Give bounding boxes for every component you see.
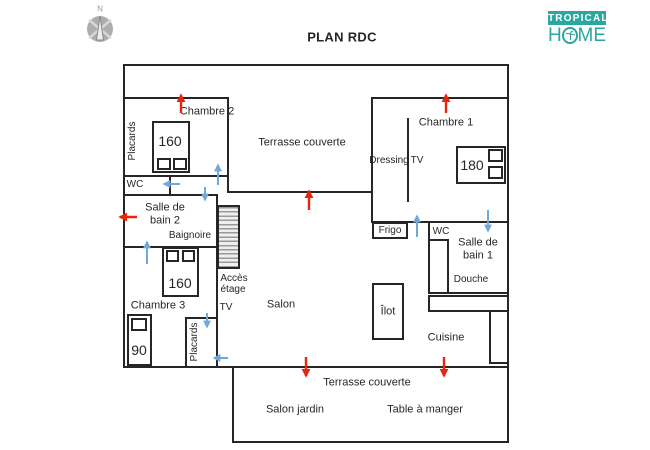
page-title: PLAN RDC bbox=[307, 30, 377, 45]
label-table-a-manger: Table à manger bbox=[387, 405, 463, 416]
room-label-cuisine: Cuisine bbox=[428, 333, 465, 344]
logo-word-tropical: TROPICAL bbox=[548, 11, 606, 25]
room-label-sdb2-line1: Salle de bbox=[145, 203, 185, 214]
kitchen-counter-right bbox=[489, 310, 509, 364]
compass-north-label: N bbox=[97, 5, 103, 14]
wall bbox=[169, 175, 171, 196]
pillow bbox=[173, 158, 187, 170]
label-baignoire: Baignoire bbox=[169, 231, 211, 241]
bed-size-label: 160 bbox=[158, 134, 181, 148]
room-label-salon: Salon bbox=[267, 300, 295, 311]
room-label-dressing: Dressing bbox=[369, 156, 408, 166]
wall bbox=[227, 191, 373, 193]
room-label-chambre-3: Chambre 3 bbox=[131, 301, 185, 312]
wall bbox=[507, 64, 509, 443]
room-label-sdb1-line1: Salle de bbox=[458, 238, 498, 249]
room-label-sdb2-line2: bain 2 bbox=[150, 216, 180, 227]
room-label-wc-left: WC bbox=[127, 180, 144, 190]
pillow bbox=[131, 318, 147, 331]
pillow bbox=[488, 166, 503, 179]
room-label-chambre-1: Chambre 1 bbox=[419, 118, 473, 129]
wall bbox=[371, 97, 509, 99]
room-label-terrasse-sud: Terrasse couverte bbox=[323, 378, 410, 389]
label-acces-etage-line2: étage bbox=[220, 285, 245, 295]
wall bbox=[123, 64, 509, 66]
wall bbox=[123, 64, 125, 368]
room-label-chambre-2: Chambre 2 bbox=[180, 107, 234, 118]
bed-size-label: 180 bbox=[460, 158, 483, 172]
label-frigo: Frigo bbox=[379, 226, 402, 236]
label-douche: Douche bbox=[454, 275, 488, 285]
logo-word-home: HME bbox=[548, 26, 606, 45]
logo-letters-me: ME bbox=[578, 26, 607, 45]
wall bbox=[123, 175, 229, 177]
pillow bbox=[166, 250, 179, 262]
shower-partition-wall bbox=[428, 239, 449, 241]
label-placards-chambre-3: Placards bbox=[190, 323, 200, 362]
stairs bbox=[217, 205, 240, 269]
label-ilot: Îlot bbox=[381, 307, 396, 318]
logo-palm-icon bbox=[562, 27, 578, 44]
logo-letter-h: H bbox=[548, 26, 562, 45]
wall bbox=[232, 441, 509, 443]
floor-plan-page: N PLAN RDC TROPICAL HME 160 180 bbox=[0, 0, 650, 450]
shower-partition-wall bbox=[447, 239, 449, 292]
bed-size-label: 90 bbox=[131, 343, 147, 357]
label-tv-salon: TV bbox=[220, 303, 233, 313]
compass-icon bbox=[85, 14, 115, 44]
wall bbox=[123, 366, 509, 368]
label-tv-chambre-1: TV bbox=[411, 156, 424, 166]
bed-size-label: 160 bbox=[168, 276, 191, 290]
wall bbox=[232, 366, 234, 443]
room-label-wc-right: WC bbox=[433, 227, 450, 237]
tropical-home-logo: TROPICAL HME bbox=[548, 11, 606, 45]
wall bbox=[123, 97, 229, 99]
label-placards-chambre-2: Placards bbox=[128, 122, 138, 161]
label-acces-etage-line1: Accès bbox=[220, 274, 247, 284]
pillow bbox=[157, 158, 171, 170]
pillow bbox=[182, 250, 195, 262]
pillow bbox=[488, 149, 503, 162]
room-label-sdb1-line2: bain 1 bbox=[463, 251, 493, 262]
wall bbox=[428, 221, 430, 294]
room-label-terrasse-nord: Terrasse couverte bbox=[258, 138, 345, 149]
wall bbox=[428, 292, 509, 294]
label-salon-jardin: Salon jardin bbox=[266, 405, 324, 416]
